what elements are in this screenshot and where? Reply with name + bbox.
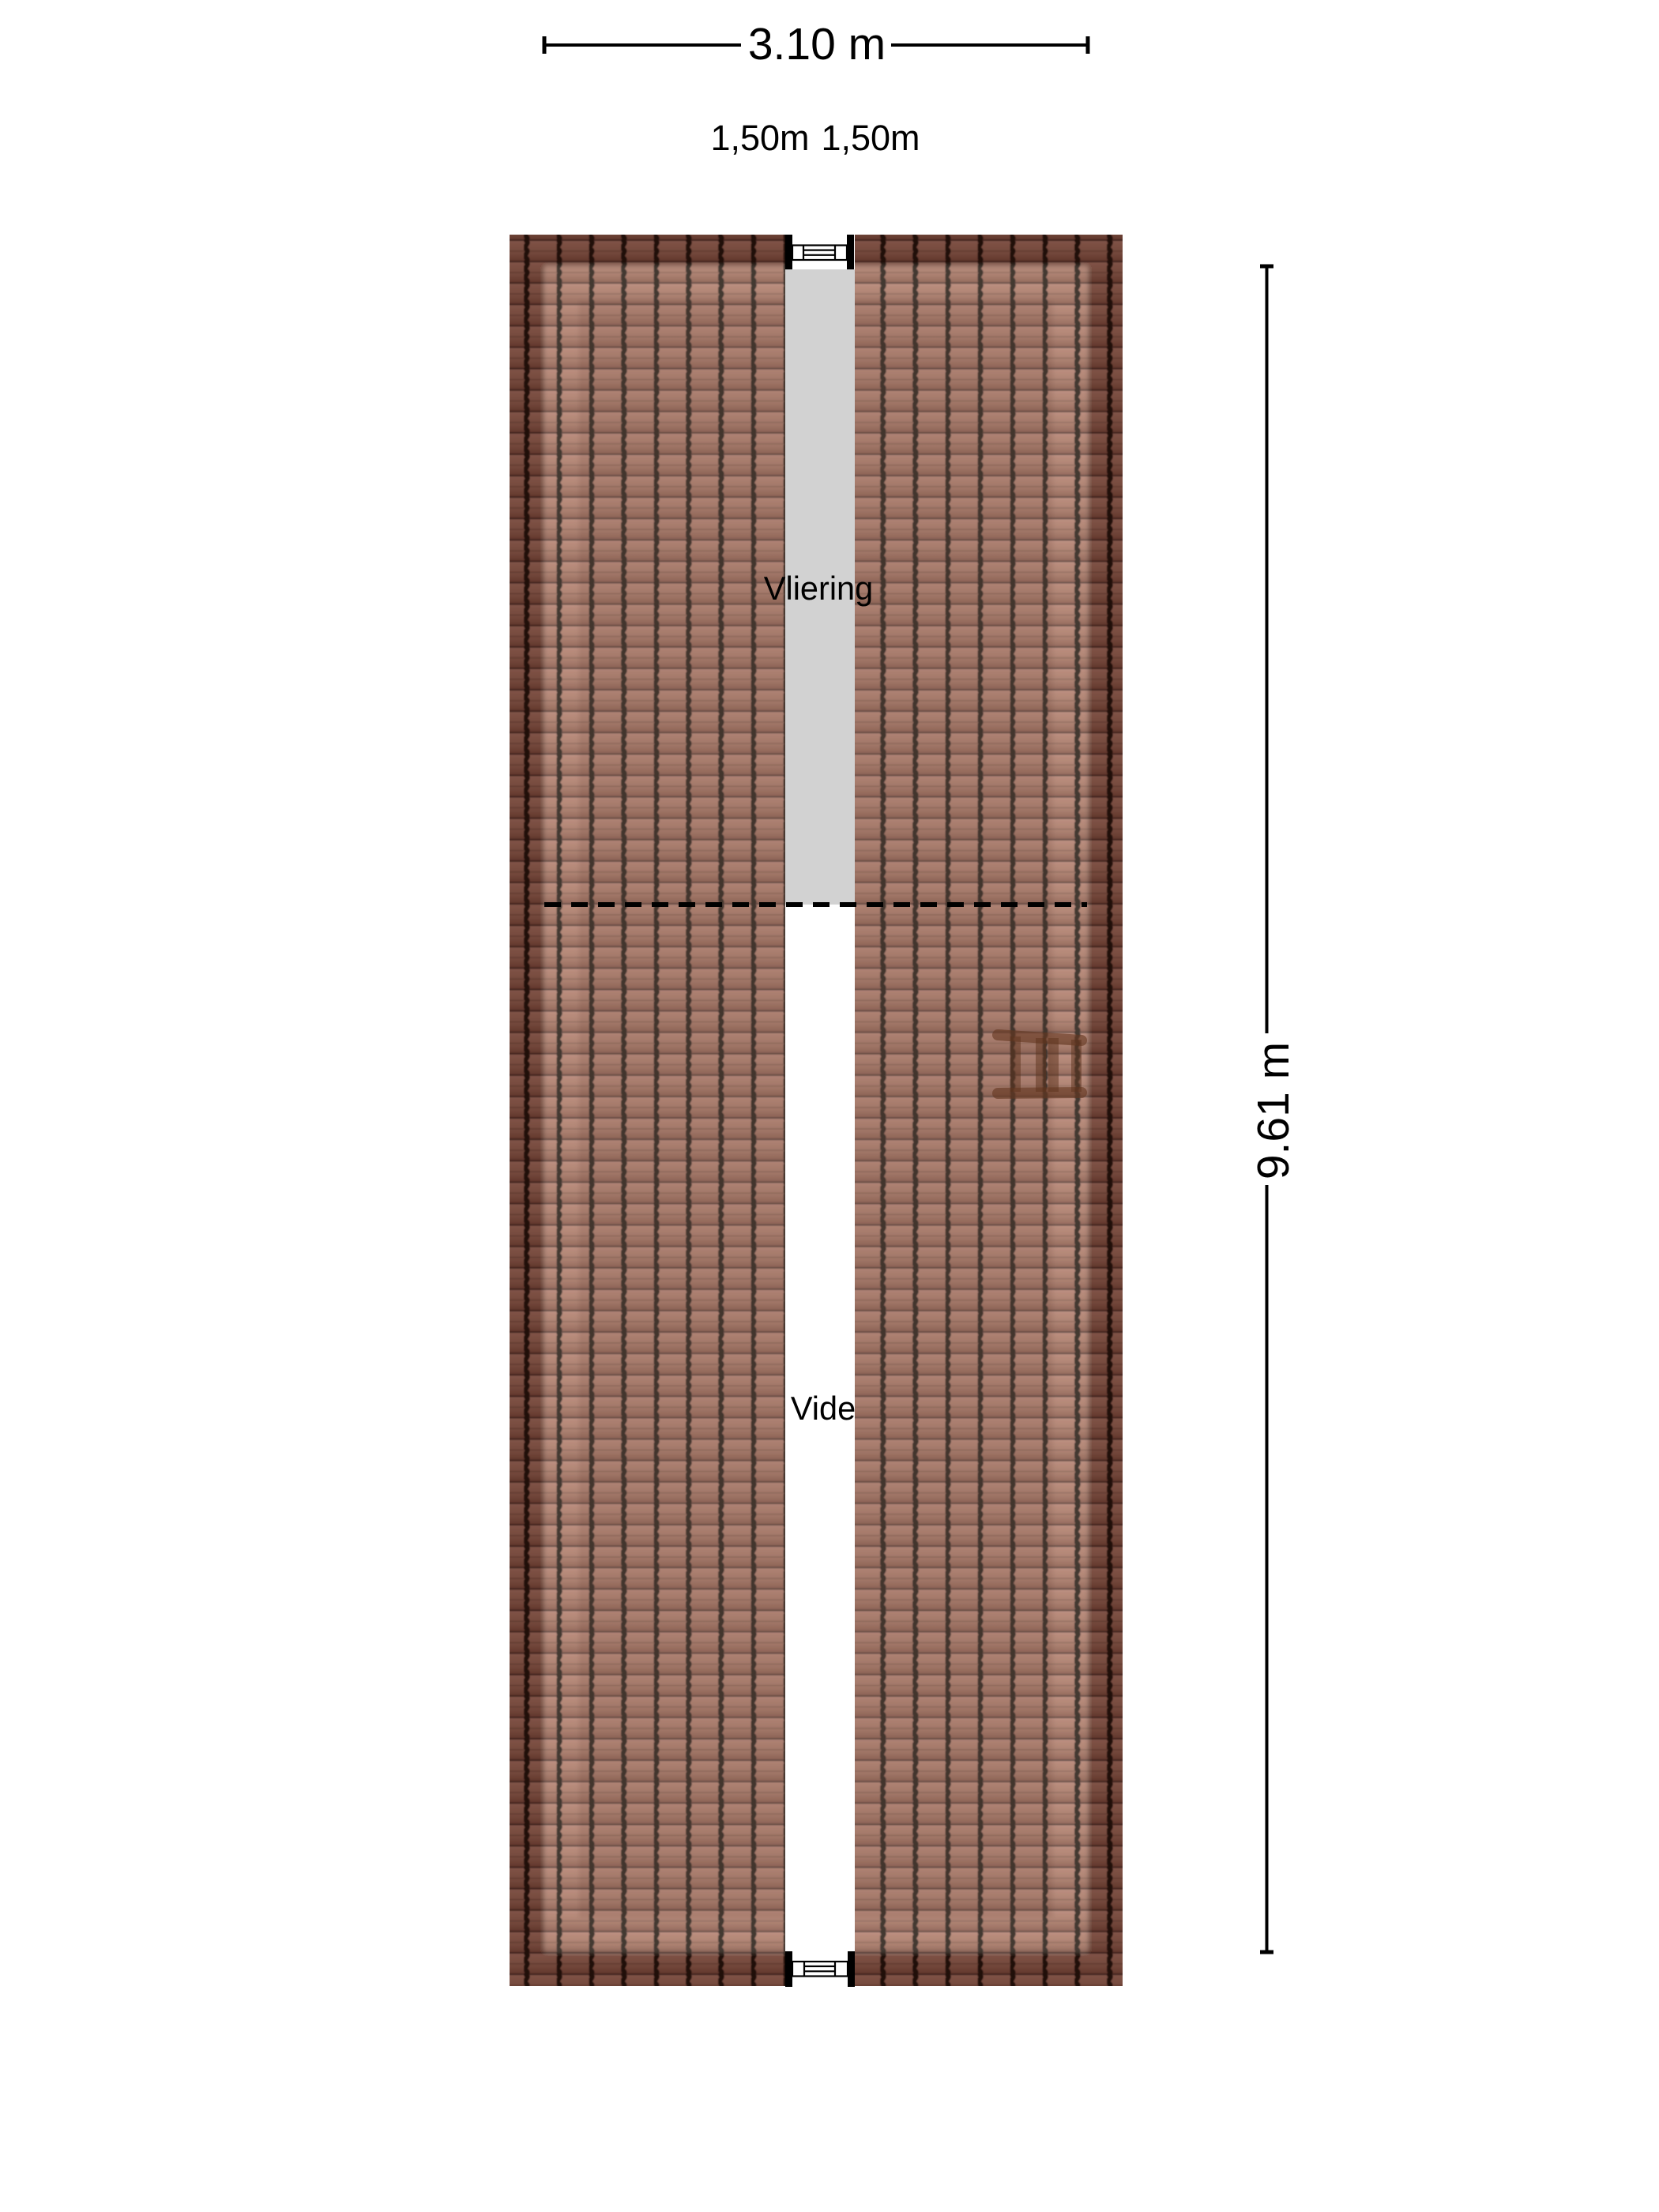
svg-text:Vide: Vide [791,1390,856,1427]
svg-text:1,50m: 1,50m [710,118,809,158]
svg-text:3.10 m: 3.10 m [748,19,886,70]
svg-text:Vliering: Vliering [764,570,873,607]
svg-text:1,50m: 1,50m [821,118,920,158]
svg-text:9.61 m: 9.61 m [1248,1042,1299,1179]
